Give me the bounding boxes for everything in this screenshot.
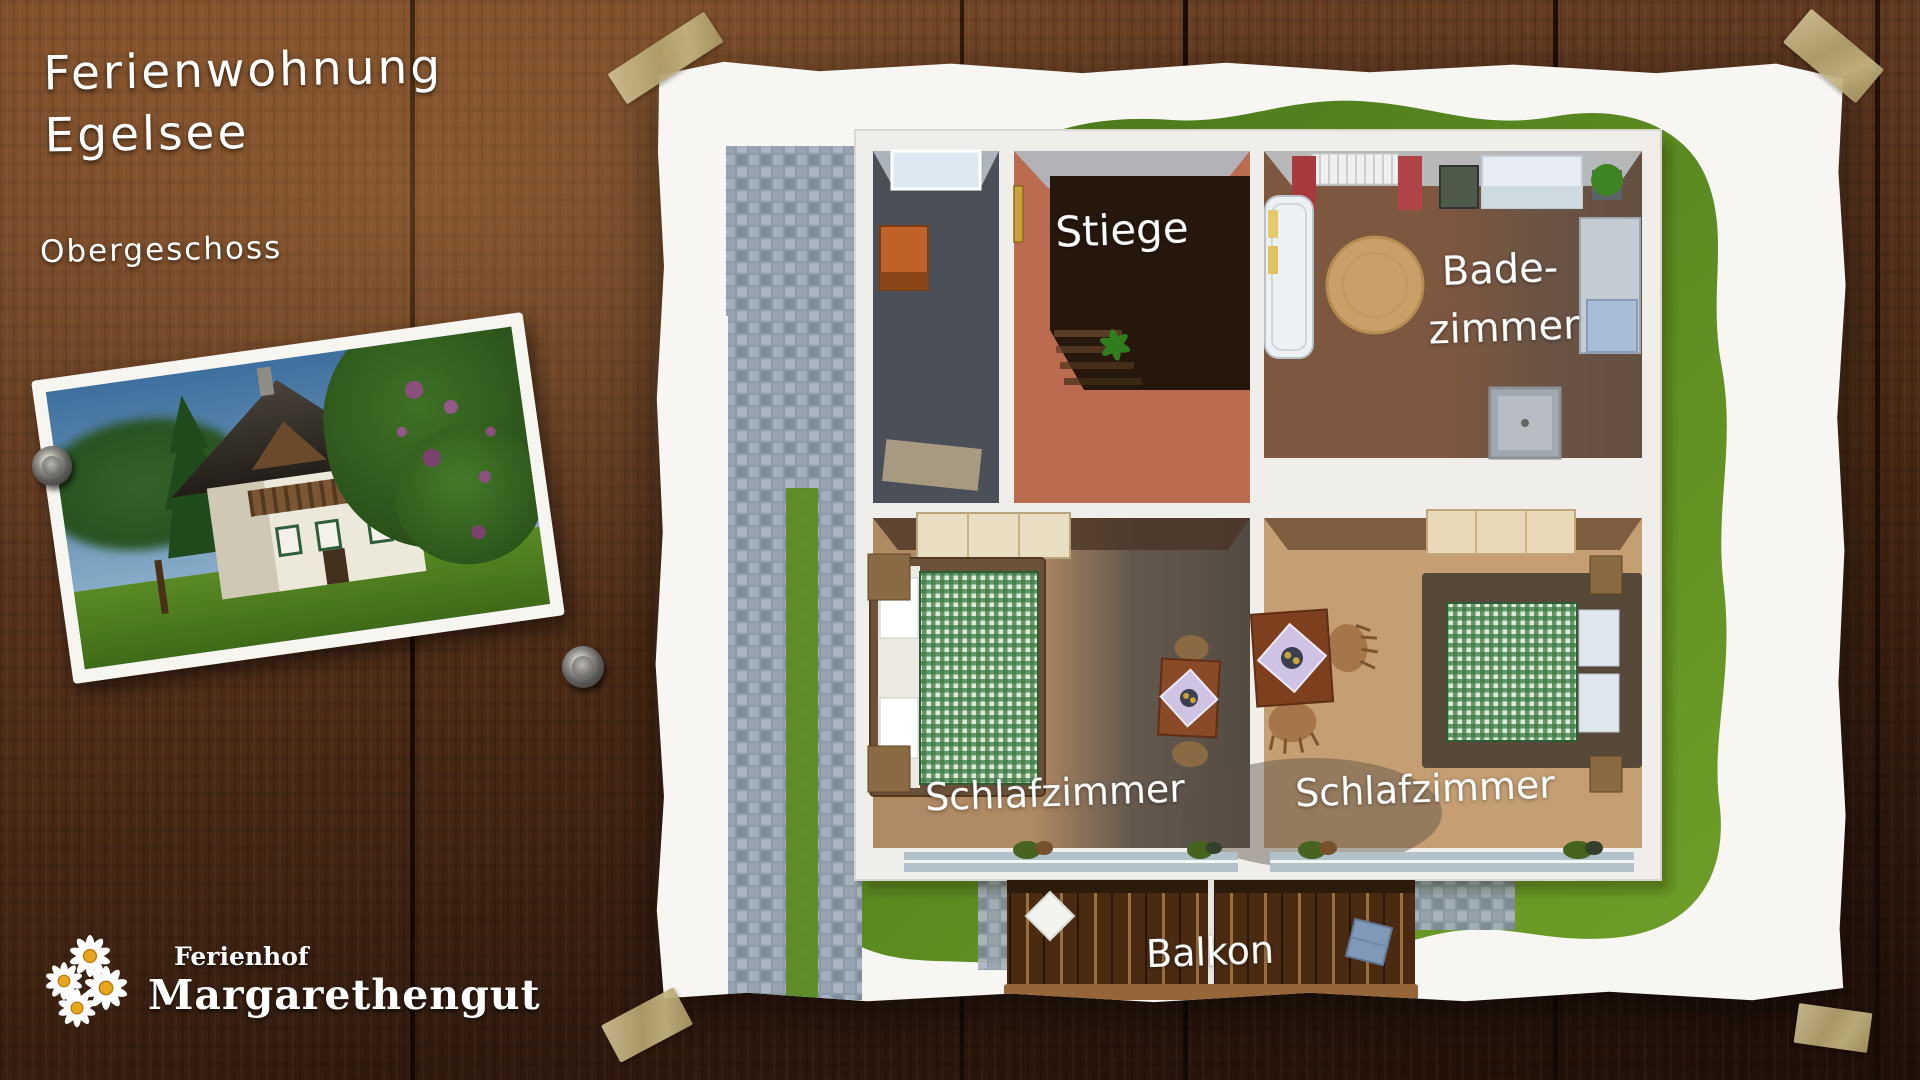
farm-logo: Ferienhof Margarethengut (46, 932, 541, 1028)
bed-pillow (1579, 610, 1619, 666)
bed-post (868, 746, 910, 792)
stair-step (1060, 362, 1134, 369)
room-label-bathroom-line2: zimmer (1428, 302, 1581, 353)
house-photo-scene (46, 327, 550, 670)
bathroom-cabinet (1580, 218, 1640, 353)
bed-duvet-gingham (920, 572, 1038, 784)
bath-towel-yellow (1268, 210, 1278, 238)
photo-window (275, 524, 303, 557)
bed-right (1422, 556, 1642, 792)
bed-duvet-gingham (1447, 603, 1577, 741)
bath-towel-yellow (1268, 246, 1278, 274)
balcony-table-blue (1346, 919, 1392, 965)
bathroom-towel (1398, 156, 1422, 210)
bathroom-stool (1440, 166, 1478, 208)
balcony-rail-rim (1004, 984, 1418, 1000)
stair-step (1064, 378, 1142, 385)
pin-cap (572, 656, 594, 678)
bed-post (868, 554, 910, 600)
tape-icon-bottom-left (601, 987, 693, 1063)
plan-paper: Stiege Bade- zimmer Schlafzimmer Schlafz… (652, 58, 1848, 1005)
house-photo (31, 312, 565, 684)
farm-logo-text: Ferienhof Margarethengut (148, 942, 541, 1019)
utility-window (892, 151, 980, 189)
balcony-door-rail (1270, 860, 1634, 863)
bathtub (1265, 196, 1313, 358)
stiege-door-handle (1014, 186, 1023, 242)
page-subtitle: Obergeschoss (40, 230, 283, 270)
plan-stone-patch (978, 880, 1007, 970)
wardrobe (1427, 510, 1575, 554)
title-line-2: Egelsee (44, 99, 445, 168)
room-label-bedroom-left: Schlafzimmer (924, 766, 1186, 819)
shower (1490, 388, 1560, 458)
wood-background: Ferienwohnung Egelsee Obergeschoss (0, 0, 1920, 1080)
bathroom-plant (1591, 164, 1623, 200)
tape-icon-bottom-right (1794, 1003, 1873, 1053)
floor-plan: Stiege Bade- zimmer Schlafzimmer Schlafz… (652, 58, 1848, 1005)
farm-name: Margarethengut (148, 971, 541, 1019)
room-label-stiege: Stiege (1055, 203, 1190, 257)
farm-label: Ferienhof (174, 942, 541, 971)
balcony-door-rail (904, 860, 1238, 863)
plan-paper-surface: Stiege Bade- zimmer Schlafzimmer Schlafz… (652, 58, 1848, 1005)
bed-left (868, 554, 1045, 796)
room-label-balcony: Balkon (1145, 928, 1274, 976)
bed-pillow (1579, 674, 1619, 732)
bathroom-bench (1482, 156, 1582, 208)
page-title: Ferienwohnung Egelsee (43, 37, 445, 168)
pin-cap (42, 456, 63, 477)
room-label-bathroom-line1: Bade- (1441, 245, 1559, 295)
utility-chest-lid (880, 272, 928, 290)
bathroom-round-rug (1327, 237, 1423, 333)
photo-window (314, 519, 342, 552)
pin-icon (562, 646, 604, 688)
bed-post (1590, 756, 1622, 792)
plan-grass-strip (786, 488, 818, 998)
room-label-bedroom-right: Schlafzimmer (1294, 762, 1556, 815)
bed-post (1590, 556, 1622, 594)
wardrobe (917, 513, 1070, 558)
daisy-icon (46, 932, 132, 1028)
photo-door (323, 548, 350, 585)
bathroom-cabinet-box (1587, 300, 1637, 352)
pin-icon (32, 446, 72, 486)
title-line-1: Ferienwohnung (43, 37, 444, 106)
